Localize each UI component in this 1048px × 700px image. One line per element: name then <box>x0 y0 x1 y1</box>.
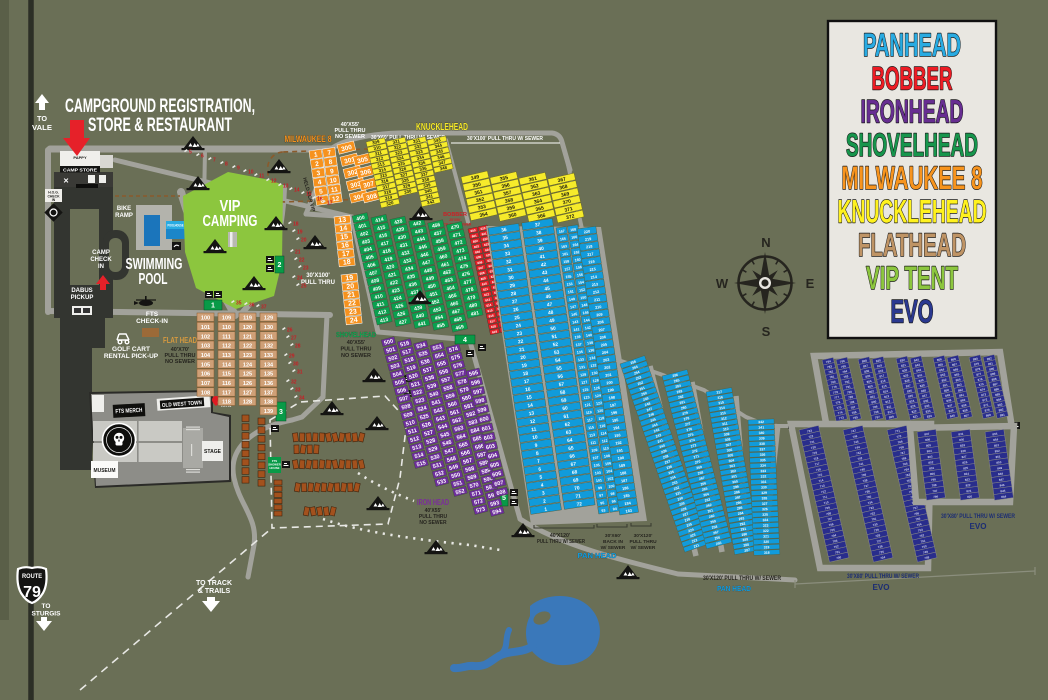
svg-text:100: 100 <box>201 316 210 322</box>
svg-text:801: 801 <box>929 466 935 471</box>
svg-text:BOBBER: BOBBER <box>872 60 953 96</box>
svg-text:116: 116 <box>222 381 231 387</box>
svg-text:FLAT HEAD: FLAT HEAD <box>163 336 197 345</box>
svg-text:19: 19 <box>345 275 354 283</box>
svg-text:24: 24 <box>297 276 303 282</box>
svg-text:323: 323 <box>763 524 769 528</box>
svg-text:22: 22 <box>299 258 305 264</box>
svg-text:114: 114 <box>222 362 232 368</box>
svg-text:322: 322 <box>763 529 769 533</box>
svg-text:MILWAUKEE 8: MILWAUKEE 8 <box>842 160 983 196</box>
svg-text:36: 36 <box>249 303 255 309</box>
svg-text:338: 338 <box>759 442 765 446</box>
svg-text:13: 13 <box>283 184 289 190</box>
svg-text:CAMPING: CAMPING <box>203 213 258 230</box>
svg-text:20: 20 <box>301 238 307 244</box>
svg-text:339: 339 <box>759 436 765 440</box>
svg-text:PAPPY: PAPPY <box>73 155 87 160</box>
svg-text:6: 6 <box>201 154 204 160</box>
svg-text:111: 111 <box>590 440 596 445</box>
svg-text:128: 128 <box>243 400 252 406</box>
svg-text:853: 853 <box>994 443 1000 448</box>
svg-text:11: 11 <box>331 186 339 194</box>
svg-text:117: 117 <box>587 418 593 423</box>
svg-text:132: 132 <box>264 344 273 350</box>
svg-text:18: 18 <box>293 222 299 228</box>
svg-text:329: 329 <box>761 491 767 495</box>
svg-text:847: 847 <box>999 477 1005 482</box>
svg-text:31: 31 <box>297 370 303 376</box>
svg-text:320: 320 <box>763 540 769 544</box>
svg-text:KNUCKLEHEAD: KNUCKLEHEAD <box>416 122 468 133</box>
svg-text:115: 115 <box>222 372 231 378</box>
svg-text:94: 94 <box>613 507 618 512</box>
svg-text:796: 796 <box>933 494 939 499</box>
svg-text:40'X55': 40'X55' <box>347 340 366 346</box>
svg-text:16: 16 <box>341 242 350 250</box>
svg-text:30: 30 <box>293 362 299 368</box>
svg-text:131: 131 <box>264 334 273 340</box>
svg-text:NO SEWER: NO SEWER <box>335 134 365 140</box>
svg-text:IRON HEAD: IRON HEAD <box>417 498 449 507</box>
svg-text:114: 114 <box>600 431 606 436</box>
svg-text:101: 101 <box>201 325 210 331</box>
svg-text:25: 25 <box>301 284 307 290</box>
svg-text:PULL THRU: PULL THRU <box>340 347 371 353</box>
svg-text:342: 342 <box>758 420 764 424</box>
svg-text:STURGIS: STURGIS <box>32 611 62 618</box>
svg-text:130: 130 <box>264 325 273 331</box>
svg-text:829: 829 <box>960 443 966 448</box>
svg-text:807: 807 <box>924 432 930 437</box>
svg-text:CAMPGROUND REGISTRATION,: CAMPGROUND REGISTRATION, <box>65 96 255 117</box>
svg-text:117: 117 <box>222 390 231 396</box>
svg-text:SHOVELHEAD: SHOVELHEAD <box>336 330 376 339</box>
svg-text:13: 13 <box>338 217 347 225</box>
svg-text:17: 17 <box>342 250 351 258</box>
svg-text:122: 122 <box>243 344 252 350</box>
svg-text:IN: IN <box>98 264 104 270</box>
svg-text:14: 14 <box>339 225 348 233</box>
svg-text:14: 14 <box>294 188 300 194</box>
svg-text:330: 330 <box>761 485 767 489</box>
svg-text:336: 336 <box>760 453 766 457</box>
svg-text:134: 134 <box>264 362 274 368</box>
svg-text:27: 27 <box>291 336 297 342</box>
svg-text:30'X100': 30'X100' <box>306 273 330 279</box>
svg-text:124: 124 <box>243 362 253 368</box>
svg-text:327: 327 <box>762 502 768 506</box>
svg-text:EVO: EVO <box>970 522 987 531</box>
svg-text:822: 822 <box>965 483 971 488</box>
svg-text:825: 825 <box>963 466 969 471</box>
svg-text:332: 332 <box>761 474 767 478</box>
svg-text:30'X120': 30'X120' <box>634 533 653 539</box>
svg-text:118: 118 <box>598 416 604 421</box>
svg-text:848: 848 <box>998 472 1004 477</box>
svg-text:33: 33 <box>295 388 301 394</box>
svg-text:96: 96 <box>611 499 616 504</box>
svg-text:15: 15 <box>340 234 349 242</box>
svg-text:10: 10 <box>329 177 338 185</box>
svg-text:BIKE: BIKE <box>117 206 131 212</box>
svg-text:CAMP STORE: CAMP STORE <box>63 167 97 172</box>
svg-text:21: 21 <box>295 250 301 256</box>
svg-text:PULL THRU: PULL THRU <box>629 539 657 545</box>
svg-text:95: 95 <box>600 501 605 506</box>
svg-text:S: S <box>762 324 771 339</box>
svg-text:845: 845 <box>1000 489 1006 494</box>
svg-text:PANHEAD: PANHEAD <box>863 27 961 63</box>
svg-text:37: 37 <box>261 305 267 311</box>
svg-text:20: 20 <box>346 283 355 291</box>
svg-text:BACK IN: BACK IN <box>603 539 624 545</box>
svg-text:135: 135 <box>264 372 273 378</box>
svg-text:DABUS: DABUS <box>71 288 92 294</box>
svg-text:321: 321 <box>763 534 769 538</box>
svg-text:112: 112 <box>222 344 231 350</box>
svg-text:32: 32 <box>291 380 297 386</box>
svg-text:PAN HEAD: PAN HEAD <box>578 551 618 560</box>
svg-text:333: 333 <box>760 469 766 473</box>
svg-text:28: 28 <box>295 344 301 350</box>
svg-text:325: 325 <box>762 513 768 517</box>
svg-text:328: 328 <box>762 496 768 500</box>
svg-text:111: 111 <box>222 334 231 340</box>
svg-text:CHECK-IN: CHECK-IN <box>136 318 168 325</box>
svg-text:855: 855 <box>992 432 998 437</box>
svg-text:30'X80' PULL THRU W/ SEWER: 30'X80' PULL THRU W/ SEWER <box>847 574 920 580</box>
svg-text:319: 319 <box>764 545 770 549</box>
svg-text:821: 821 <box>966 489 972 494</box>
svg-text:3: 3 <box>279 409 283 416</box>
svg-text:107: 107 <box>201 381 210 387</box>
svg-text:15: 15 <box>306 192 312 198</box>
svg-text:827: 827 <box>961 455 967 460</box>
svg-text:TO: TO <box>42 603 51 610</box>
svg-text:119: 119 <box>243 316 252 322</box>
svg-text:102: 102 <box>201 334 210 340</box>
svg-text:335: 335 <box>760 458 766 462</box>
svg-text:24: 24 <box>350 317 359 325</box>
svg-text:FTS: FTS <box>146 311 159 318</box>
svg-text:804: 804 <box>927 449 933 454</box>
svg-text:12: 12 <box>271 179 277 185</box>
svg-text:106: 106 <box>201 372 210 378</box>
svg-text:125: 125 <box>243 372 252 378</box>
svg-text:PICKUP: PICKUP <box>71 295 94 301</box>
svg-text:799: 799 <box>931 477 937 482</box>
svg-text:10: 10 <box>248 170 254 176</box>
svg-text:TO: TO <box>37 116 48 123</box>
svg-text:118: 118 <box>222 400 231 406</box>
svg-text:5: 5 <box>502 495 506 502</box>
svg-text:23: 23 <box>303 266 309 272</box>
svg-text:IN: IN <box>52 198 56 202</box>
svg-text:NO SEWER: NO SEWER <box>165 359 195 365</box>
svg-text:337: 337 <box>759 447 765 451</box>
svg-text:STORE & RESTAURANT: STORE & RESTAURANT <box>88 115 232 136</box>
svg-text:116: 116 <box>599 424 605 429</box>
svg-text:850: 850 <box>996 460 1002 465</box>
svg-text:30'X120' PULL THRU W/ SEWER: 30'X120' PULL THRU W/ SEWER <box>703 576 782 582</box>
svg-text:121: 121 <box>243 334 252 340</box>
svg-text:W: W <box>716 276 729 291</box>
svg-text:108: 108 <box>201 390 210 396</box>
svg-text:GOLF CART: GOLF CART <box>112 346 150 353</box>
svg-text:803: 803 <box>927 455 933 460</box>
svg-text:30'X100' PULL THRU W/ SEWER: 30'X100' PULL THRU W/ SEWER <box>467 136 543 142</box>
svg-text:34: 34 <box>299 396 305 402</box>
svg-text:110: 110 <box>222 325 231 331</box>
svg-text:828: 828 <box>961 449 967 454</box>
svg-text:PULL THRU W/ SEWER: PULL THRU W/ SEWER <box>537 539 585 545</box>
svg-text:830: 830 <box>959 437 965 442</box>
svg-text:E: E <box>806 276 815 291</box>
svg-text:103: 103 <box>201 344 210 350</box>
svg-text:105: 105 <box>201 362 210 368</box>
svg-text:126: 126 <box>243 381 252 387</box>
svg-text:93: 93 <box>601 509 606 514</box>
svg-text:22: 22 <box>348 300 357 308</box>
svg-text:SHOVELHEAD: SHOVELHEAD <box>846 127 978 163</box>
svg-text:NO SEWER: NO SEWER <box>419 520 447 526</box>
svg-text:VALE: VALE <box>32 125 52 132</box>
svg-text:POOL: POOL <box>139 271 168 288</box>
svg-text:831: 831 <box>958 432 964 437</box>
svg-text:139: 139 <box>264 409 273 415</box>
svg-text:19: 19 <box>297 230 303 236</box>
svg-text:138: 138 <box>264 400 273 406</box>
svg-text:HOUSE: HOUSE <box>270 466 280 470</box>
svg-text:9: 9 <box>237 166 240 172</box>
svg-text:820: 820 <box>967 494 973 499</box>
svg-text:29: 29 <box>289 354 295 360</box>
svg-text:797: 797 <box>932 489 938 494</box>
svg-text:119: 119 <box>586 410 592 415</box>
svg-text:823: 823 <box>965 477 971 482</box>
svg-text:18: 18 <box>343 259 352 267</box>
svg-text:109: 109 <box>222 316 231 322</box>
svg-text:844: 844 <box>1001 494 1007 499</box>
svg-text:STAGE: STAGE <box>204 449 221 455</box>
svg-text:12: 12 <box>332 195 341 203</box>
svg-text:VIP TENT: VIP TENT <box>866 260 958 296</box>
svg-text:EVO: EVO <box>873 583 890 592</box>
svg-text:110: 110 <box>603 446 609 451</box>
svg-text:25'X50': 25'X50' <box>449 218 461 222</box>
svg-text:& TRAILS: & TRAILS <box>198 588 231 595</box>
svg-text:846: 846 <box>999 483 1005 488</box>
svg-text:KNUCKLEHEAD: KNUCKLEHEAD <box>838 194 987 230</box>
svg-text:136: 136 <box>264 381 273 387</box>
svg-text:POOLHOUSE: POOLHOUSE <box>168 224 184 228</box>
svg-text:✕: ✕ <box>63 178 69 185</box>
svg-text:79: 79 <box>23 584 41 601</box>
svg-text:806: 806 <box>925 437 931 442</box>
svg-text:NO SEWER: NO SEWER <box>341 353 371 359</box>
svg-text:21: 21 <box>347 292 356 300</box>
svg-text:802: 802 <box>928 460 934 465</box>
svg-text:826: 826 <box>962 460 968 465</box>
svg-text:8: 8 <box>225 162 228 168</box>
svg-text:MUSEUM: MUSEUM <box>94 468 116 474</box>
svg-text:137: 137 <box>264 390 273 396</box>
svg-text:30'X80' PULL THRU W/ SEWER: 30'X80' PULL THRU W/ SEWER <box>941 514 1016 520</box>
svg-text:133: 133 <box>264 353 273 359</box>
svg-text:113: 113 <box>222 353 231 359</box>
svg-text:851: 851 <box>995 455 1001 460</box>
svg-text:97: 97 <box>599 493 604 498</box>
svg-text:EVO: EVO <box>891 293 934 329</box>
svg-text:854: 854 <box>993 437 999 442</box>
svg-text:RAMP: RAMP <box>115 213 133 219</box>
svg-text:FLATHEAD: FLATHEAD <box>858 227 966 263</box>
svg-text:23: 23 <box>349 308 358 316</box>
svg-text:W/ SEWER: W/ SEWER <box>631 545 656 551</box>
svg-text:798: 798 <box>931 483 937 488</box>
svg-text:800: 800 <box>930 472 936 477</box>
svg-text:4: 4 <box>463 337 467 344</box>
svg-text:CAMP: CAMP <box>92 250 110 256</box>
svg-text:324: 324 <box>762 518 768 522</box>
svg-text:30'X60': 30'X60' <box>605 533 621 539</box>
svg-text:340: 340 <box>759 431 765 435</box>
svg-text:115: 115 <box>588 425 594 430</box>
svg-text:99: 99 <box>598 486 603 491</box>
svg-text:N: N <box>761 235 770 250</box>
svg-text:334: 334 <box>760 464 766 468</box>
svg-text:805: 805 <box>926 443 932 448</box>
svg-text:852: 852 <box>995 449 1001 454</box>
svg-text:PAN HEAD: PAN HEAD <box>717 586 751 593</box>
svg-text:26: 26 <box>287 328 293 334</box>
svg-text:5: 5 <box>189 150 192 156</box>
svg-text:341: 341 <box>758 425 764 429</box>
svg-text:824: 824 <box>964 472 970 477</box>
svg-text:7: 7 <box>213 158 216 164</box>
svg-text:120: 120 <box>243 325 252 331</box>
svg-text:113: 113 <box>589 433 595 438</box>
svg-text:IRONHEAD: IRONHEAD <box>861 94 964 130</box>
svg-text:331: 331 <box>761 480 767 484</box>
svg-text:MILWAUKEE 8: MILWAUKEE 8 <box>285 134 332 144</box>
svg-text:ROUTE: ROUTE <box>22 574 42 580</box>
svg-text:1: 1 <box>211 303 215 310</box>
svg-text:129: 129 <box>264 316 273 322</box>
svg-text:11: 11 <box>259 174 265 180</box>
svg-text:RENTAL PICK-UP: RENTAL PICK-UP <box>104 353 159 360</box>
svg-text:123: 123 <box>243 353 252 359</box>
svg-text:112: 112 <box>602 439 608 444</box>
svg-text:318: 318 <box>764 551 770 555</box>
svg-text:35: 35 <box>236 301 242 307</box>
svg-text:CHECK: CHECK <box>90 257 112 263</box>
svg-text:98: 98 <box>610 492 615 497</box>
svg-text:104: 104 <box>201 353 211 359</box>
svg-text:16: 16 <box>317 197 323 203</box>
svg-text:127: 127 <box>243 390 252 396</box>
svg-text:849: 849 <box>997 466 1003 471</box>
svg-text:326: 326 <box>762 507 768 511</box>
svg-text:TO TRACK: TO TRACK <box>196 580 232 587</box>
svg-text:17: 17 <box>327 201 333 207</box>
svg-text:2: 2 <box>278 262 282 269</box>
